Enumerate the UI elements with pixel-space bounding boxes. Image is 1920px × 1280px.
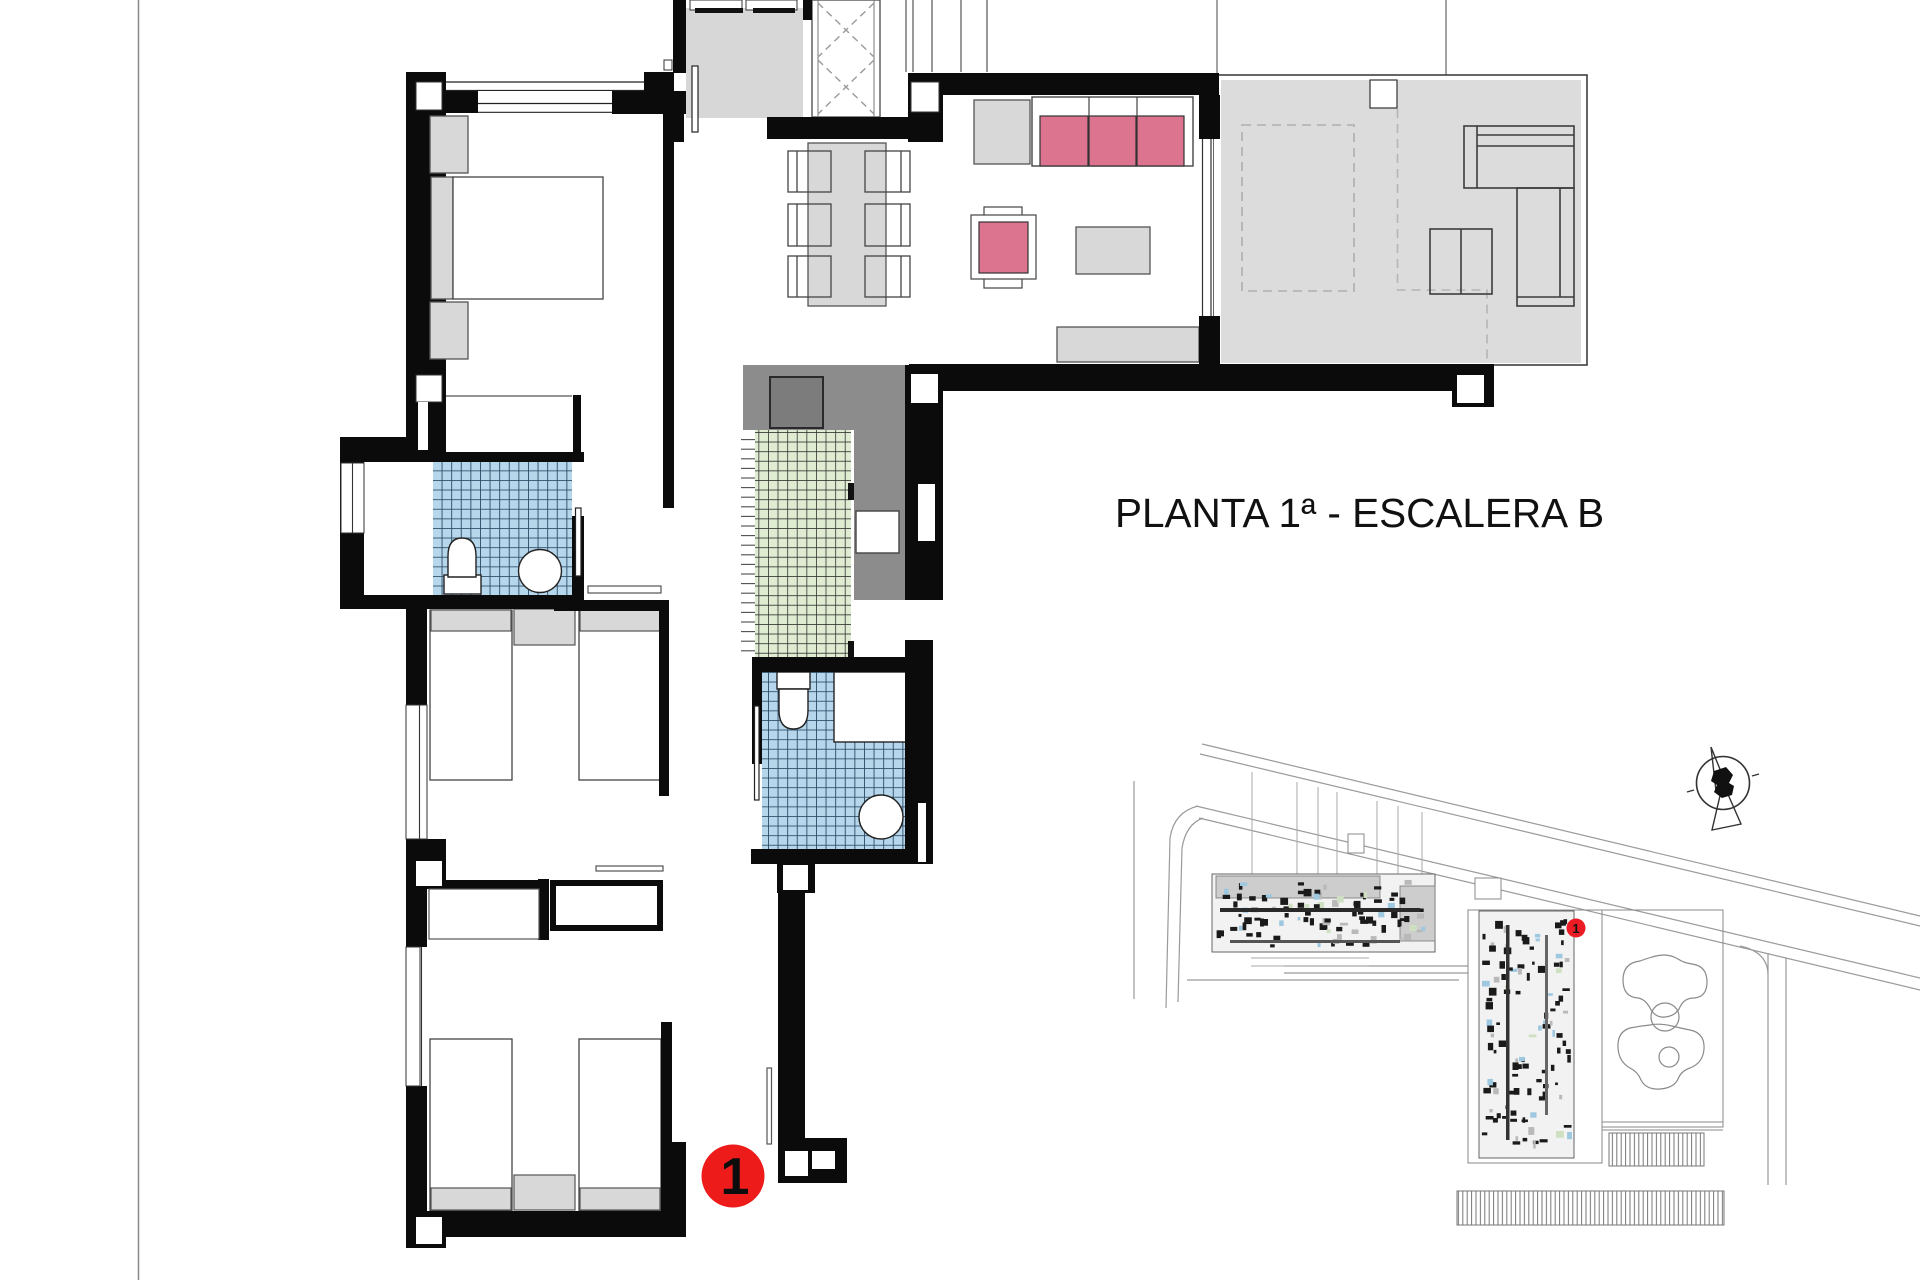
svg-text:1: 1: [1572, 921, 1579, 936]
svg-text:PLANTA 1ª - ESCALERA B: PLANTA 1ª - ESCALERA B: [1115, 490, 1604, 536]
svg-text:1: 1: [721, 1148, 750, 1206]
